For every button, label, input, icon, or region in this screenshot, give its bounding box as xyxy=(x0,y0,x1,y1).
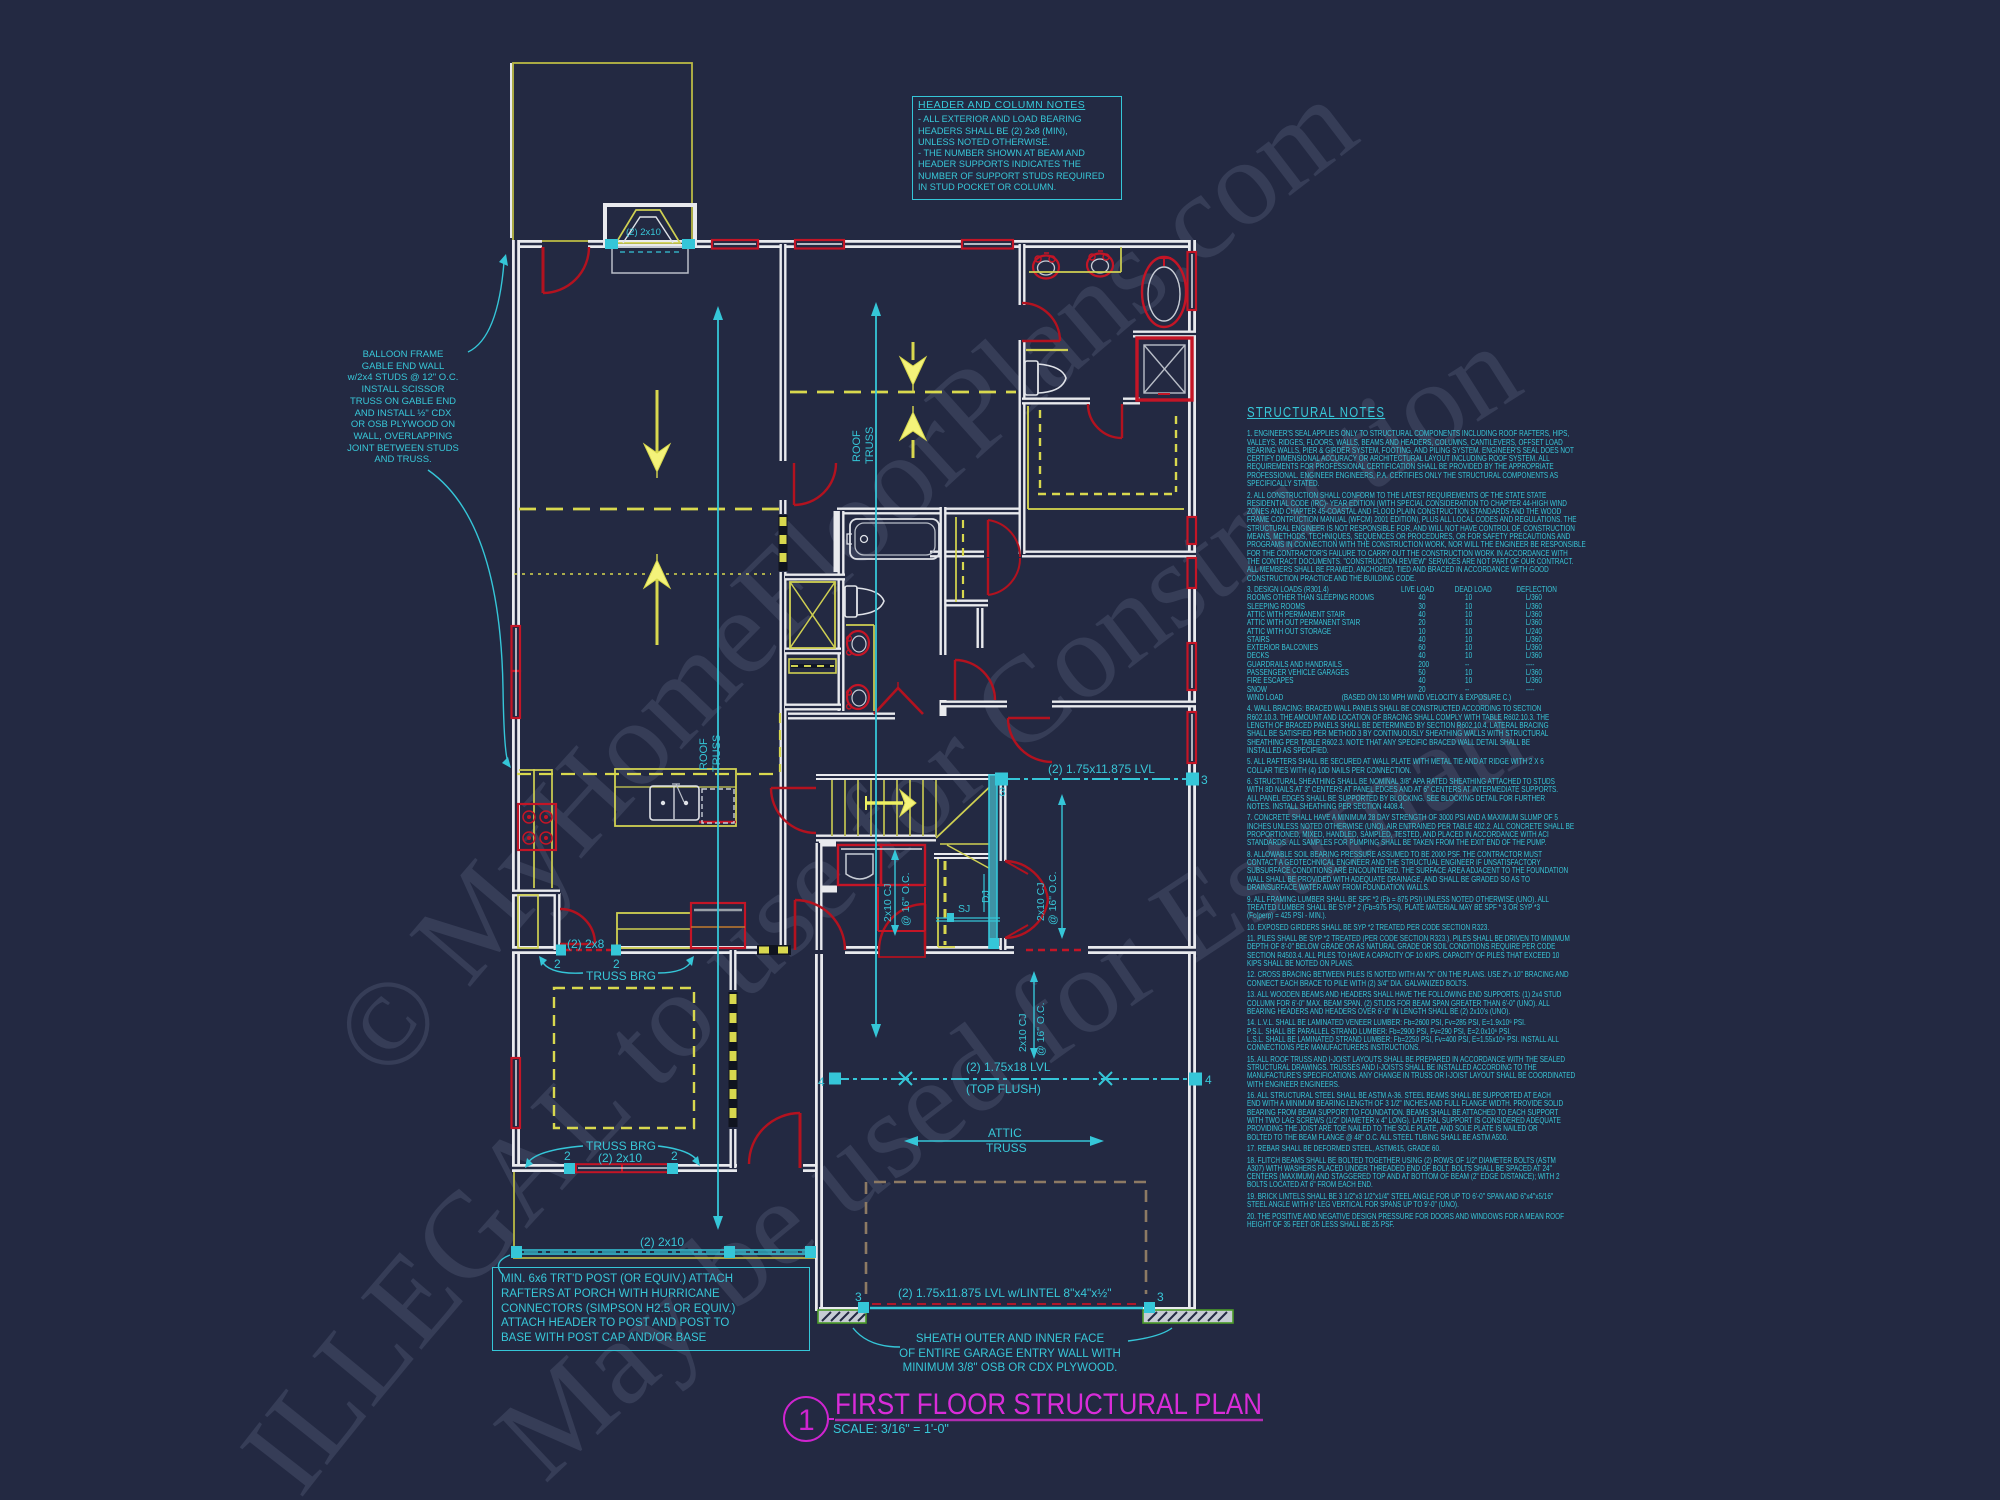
svg-text:3: 3 xyxy=(1201,773,1208,787)
svg-text:(2) 2x10: (2) 2x10 xyxy=(640,1235,684,1249)
svg-text:TRUSS: TRUSS xyxy=(864,427,876,464)
svg-text:2x10 CJ: 2x10 CJ xyxy=(882,883,894,922)
svg-text:TRUSS BRG: TRUSS BRG xyxy=(586,969,656,983)
svg-text:TRUSS: TRUSS xyxy=(711,735,723,772)
svg-text:(2) 2x8: (2) 2x8 xyxy=(567,937,605,951)
svg-text:@ 16" O.C.: @ 16" O.C. xyxy=(1035,1003,1047,1056)
svg-text:TRUSS: TRUSS xyxy=(986,1141,1027,1155)
svg-text:2: 2 xyxy=(613,957,620,971)
svg-text:3: 3 xyxy=(1157,1290,1164,1304)
svg-text:(TOP FLUSH): (TOP FLUSH) xyxy=(966,1082,1041,1096)
svg-text:(2) 2x10: (2) 2x10 xyxy=(598,1151,642,1165)
svg-text:4: 4 xyxy=(1205,1073,1212,1087)
svg-text:3: 3 xyxy=(999,785,1006,799)
svg-text:ROOF: ROOF xyxy=(851,430,863,462)
svg-text:1: 1 xyxy=(798,1404,815,1437)
svg-text:ATTIC: ATTIC xyxy=(988,1126,1022,1140)
svg-text:@ 16" O.C.: @ 16" O.C. xyxy=(1047,872,1059,925)
svg-text:2: 2 xyxy=(671,1149,678,1163)
svg-text:2: 2 xyxy=(564,1149,571,1163)
svg-text:4: 4 xyxy=(818,1075,825,1089)
svg-text:ROOF: ROOF xyxy=(698,738,710,770)
svg-text:(2) 1.75x18 LVL: (2) 1.75x18 LVL xyxy=(966,1060,1051,1074)
svg-text:2: 2 xyxy=(554,957,561,971)
svg-text:@ 16" O.C.: @ 16" O.C. xyxy=(900,873,912,926)
svg-text:FIRST FLOOR STRUCTURAL PLAN: FIRST FLOOR STRUCTURAL PLAN xyxy=(835,1388,1262,1421)
svg-text:DJ: DJ xyxy=(980,890,992,903)
svg-text:2x10 CJ: 2x10 CJ xyxy=(1035,882,1047,921)
svg-text:SJ: SJ xyxy=(958,903,970,915)
svg-text:2x10 CJ: 2x10 CJ xyxy=(1017,1013,1029,1052)
svg-text:(2) 1.75x11.875 LVL w/LINTEL 8: (2) 1.75x11.875 LVL w/LINTEL 8"x4"x½" xyxy=(898,1286,1112,1300)
svg-text:3: 3 xyxy=(855,1290,862,1304)
svg-text:(2) 1.75x11.875 LVL: (2) 1.75x11.875 LVL xyxy=(1048,762,1155,776)
